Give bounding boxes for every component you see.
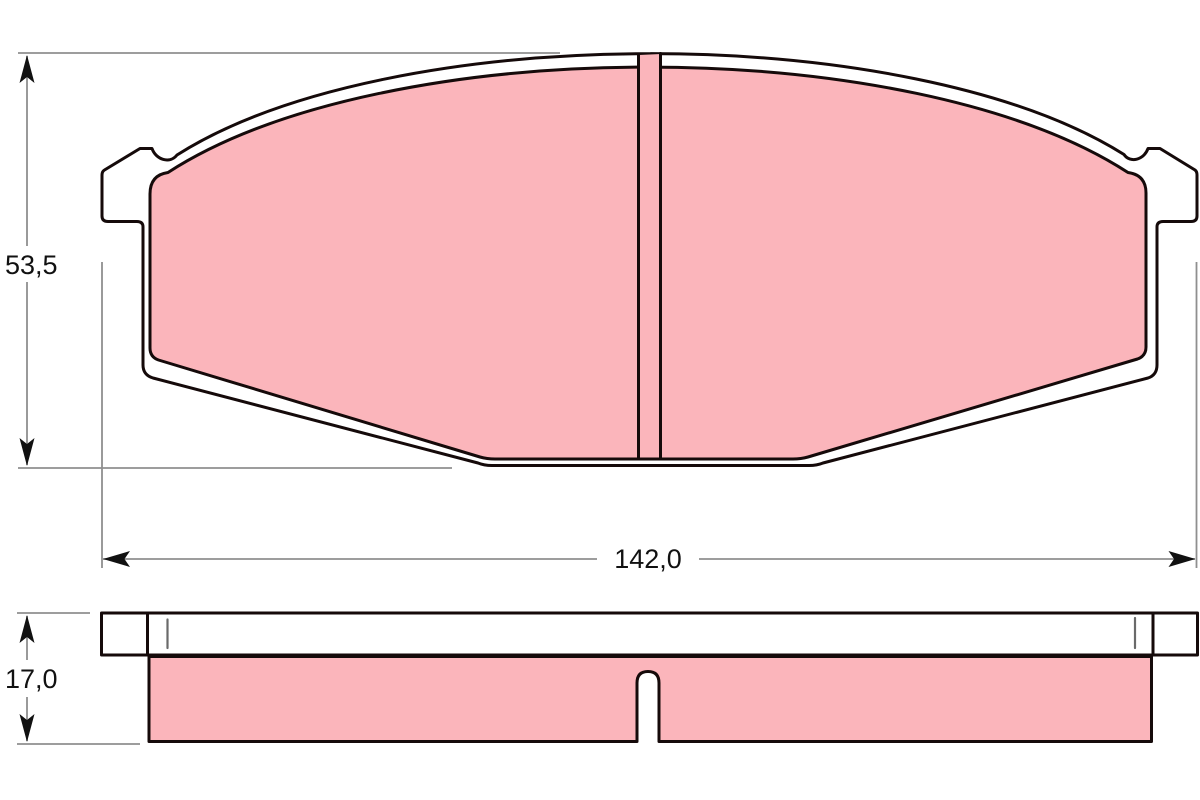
side-friction-strip bbox=[149, 657, 1152, 742]
brake-pad-technical-drawing: 53,5 142,0 17,0 bbox=[0, 0, 1200, 800]
thickness-dimension-label: 17,0 bbox=[5, 664, 58, 694]
side-backing-plate bbox=[102, 613, 1198, 655]
brake-pad-drawing-canvas: 53,5 142,0 17,0 bbox=[0, 0, 1200, 800]
top-view bbox=[102, 54, 1197, 466]
width-dimension-label: 142,0 bbox=[614, 544, 682, 574]
height-dimension-label: 53,5 bbox=[5, 250, 58, 280]
center-groove-fill bbox=[639, 54, 661, 458]
side-view bbox=[102, 613, 1198, 742]
